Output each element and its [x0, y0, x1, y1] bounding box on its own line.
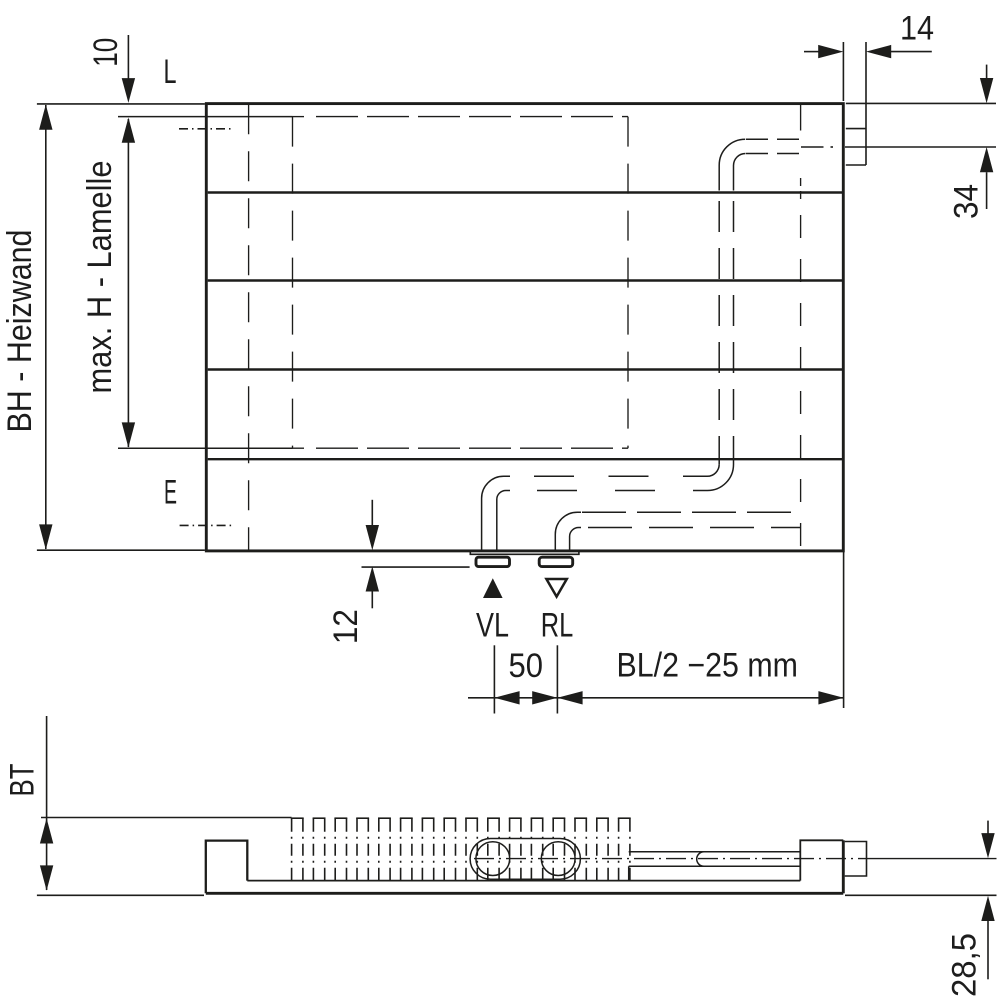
svg-text:10: 10 [87, 38, 125, 67]
svg-text:BL/2 −25 mm: BL/2 −25 mm [617, 646, 799, 684]
svg-text:RL: RL [541, 607, 574, 645]
svg-text:14: 14 [900, 10, 934, 48]
svg-text:E: E [164, 474, 177, 512]
svg-text:12: 12 [327, 609, 365, 644]
svg-text:BH - Heizwand: BH - Heizwand [1, 230, 39, 433]
svg-text:max. H - Lamelle: max. H - Lamelle [81, 161, 119, 394]
svg-text:50: 50 [509, 647, 544, 685]
svg-text:BT: BT [4, 764, 42, 797]
svg-text:VL: VL [476, 607, 509, 645]
svg-text:34: 34 [948, 184, 986, 219]
svg-text:28,5: 28,5 [946, 933, 984, 997]
svg-text:L: L [164, 53, 177, 91]
